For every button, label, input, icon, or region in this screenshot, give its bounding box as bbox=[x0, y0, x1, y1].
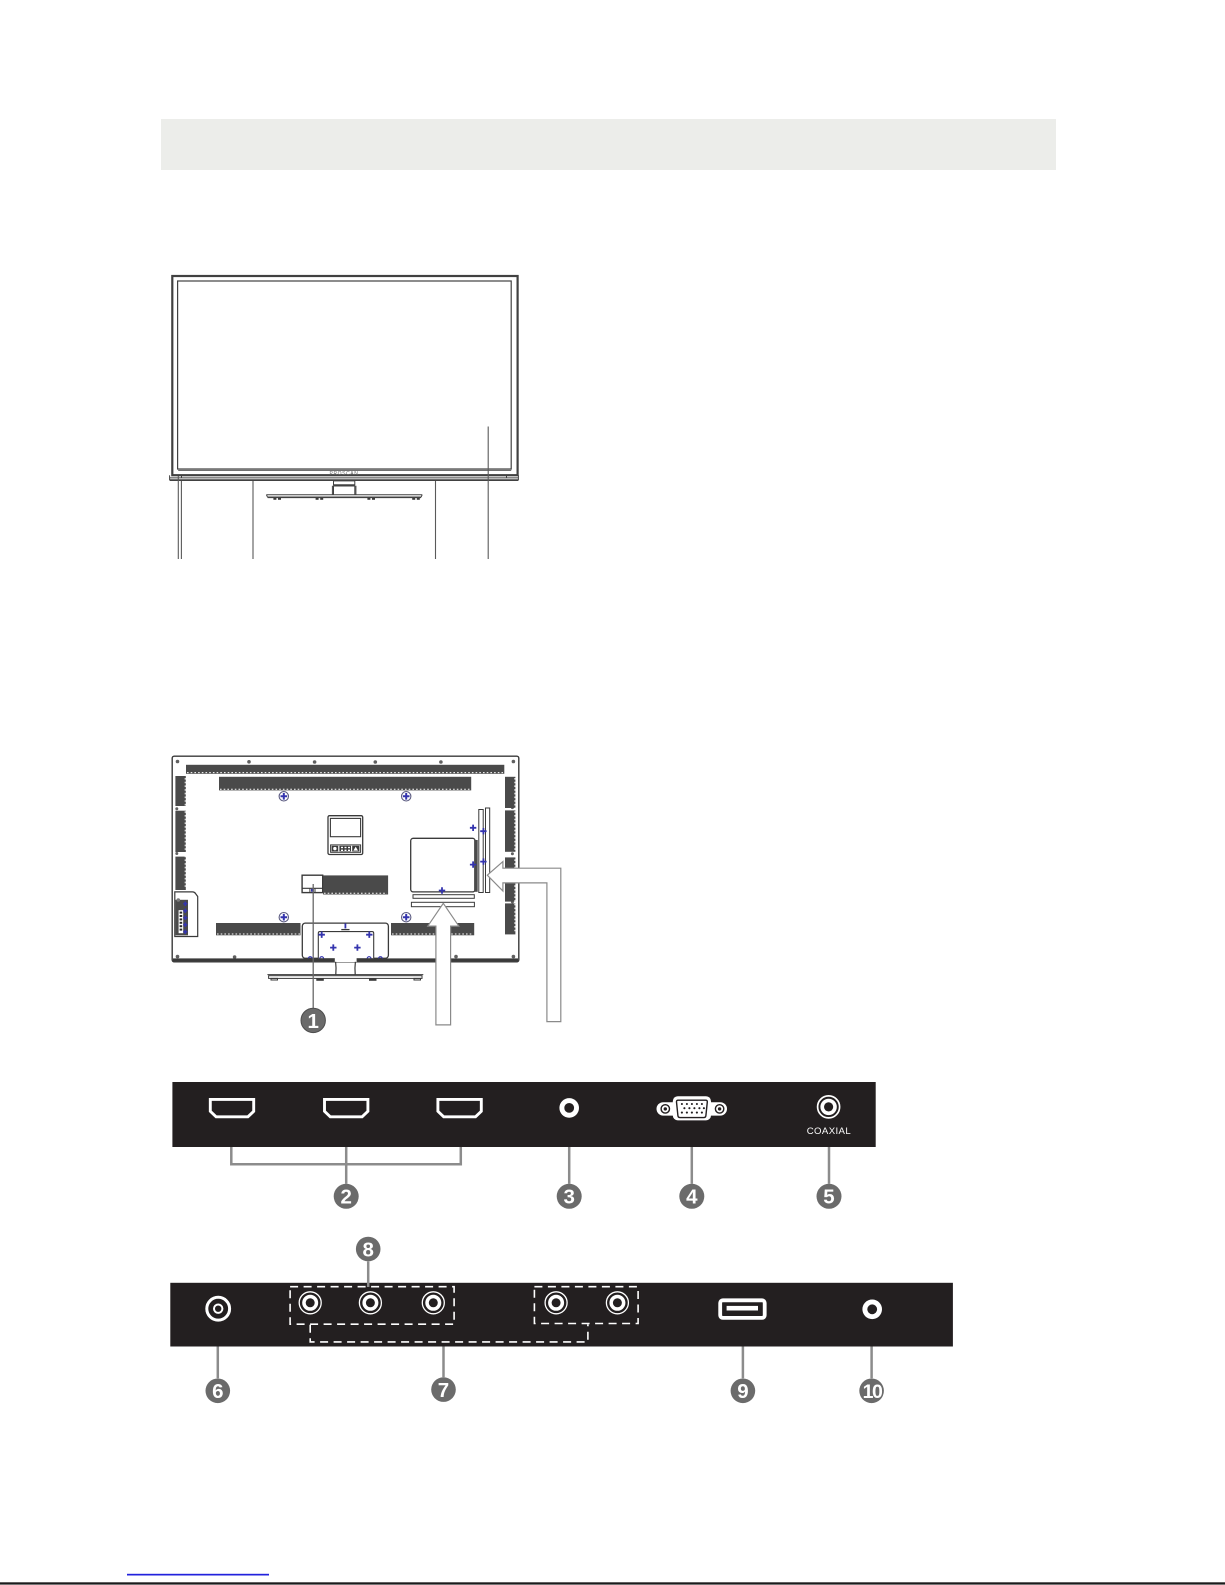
svg-text:5: 5 bbox=[823, 1186, 834, 1209]
svg-text:PROSCAN: PROSCAN bbox=[330, 471, 359, 477]
svg-text:2: 2 bbox=[340, 1186, 351, 1209]
svg-text:9: 9 bbox=[737, 1380, 748, 1403]
svg-text:6: 6 bbox=[212, 1380, 223, 1403]
svg-text:3: 3 bbox=[563, 1186, 574, 1209]
svg-text:1: 1 bbox=[307, 1010, 318, 1033]
svg-text:10: 10 bbox=[863, 1381, 883, 1403]
svg-text:4: 4 bbox=[686, 1186, 698, 1209]
svg-text:7: 7 bbox=[438, 1379, 449, 1402]
svg-text:COAXIAL: COAXIAL bbox=[807, 1126, 852, 1137]
svg-text:8: 8 bbox=[362, 1238, 373, 1261]
